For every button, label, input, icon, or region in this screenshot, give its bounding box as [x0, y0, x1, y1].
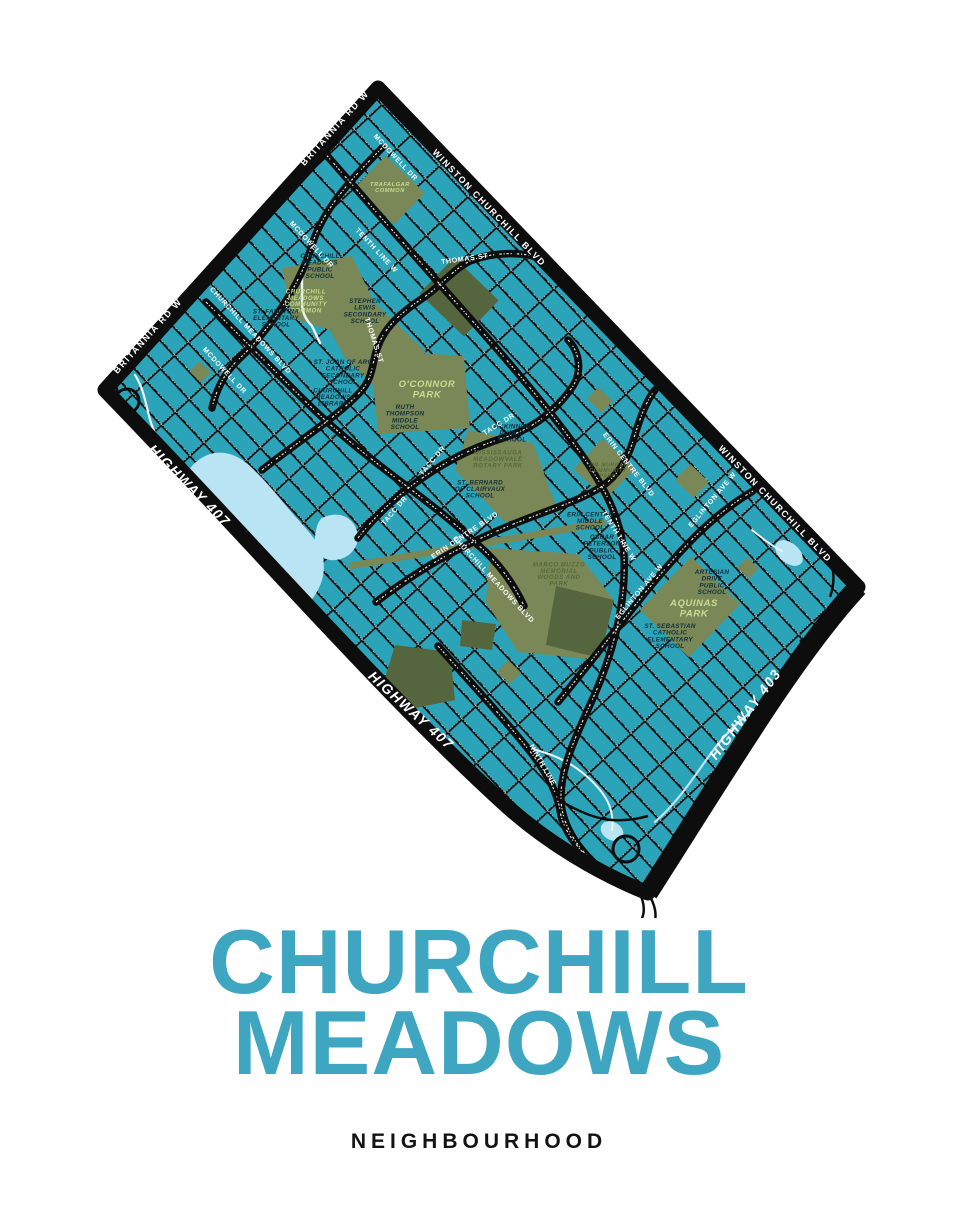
neighbourhood-map-poster: TRAFALGARCOMMONCHURCHILLMEADOWSCOMMUNITY… [0, 0, 958, 1220]
map-label-churchill-meadows-library: CHURCHILLMEADOWSLIBRARY [313, 387, 352, 407]
pond-north [627, 291, 660, 323]
map-canvas: TRAFALGARCOMMONCHURCHILLMEADOWSCOMMUNITY… [0, 0, 958, 918]
poster-title: CHURCHILL MEADOWS [0, 922, 958, 1084]
poster-subtitle: NEIGHBOURHOOD [0, 1130, 958, 1154]
map-label-trafalgar-common: TRAFALGARCOMMON [370, 182, 410, 194]
title-line-2: MEADOWS [0, 1003, 958, 1084]
map-label-mississauga-meadowvale-rotary-park: MISSISSAUGAMEADOWVALEROTARY PARK [473, 451, 523, 470]
title-line-1: CHURCHILL [0, 922, 958, 1003]
map-label-artesian-drive-public-school: ARTESIANDRIVEPUBLICSCHOOL [694, 569, 730, 596]
woods-south-2 [460, 620, 496, 650]
